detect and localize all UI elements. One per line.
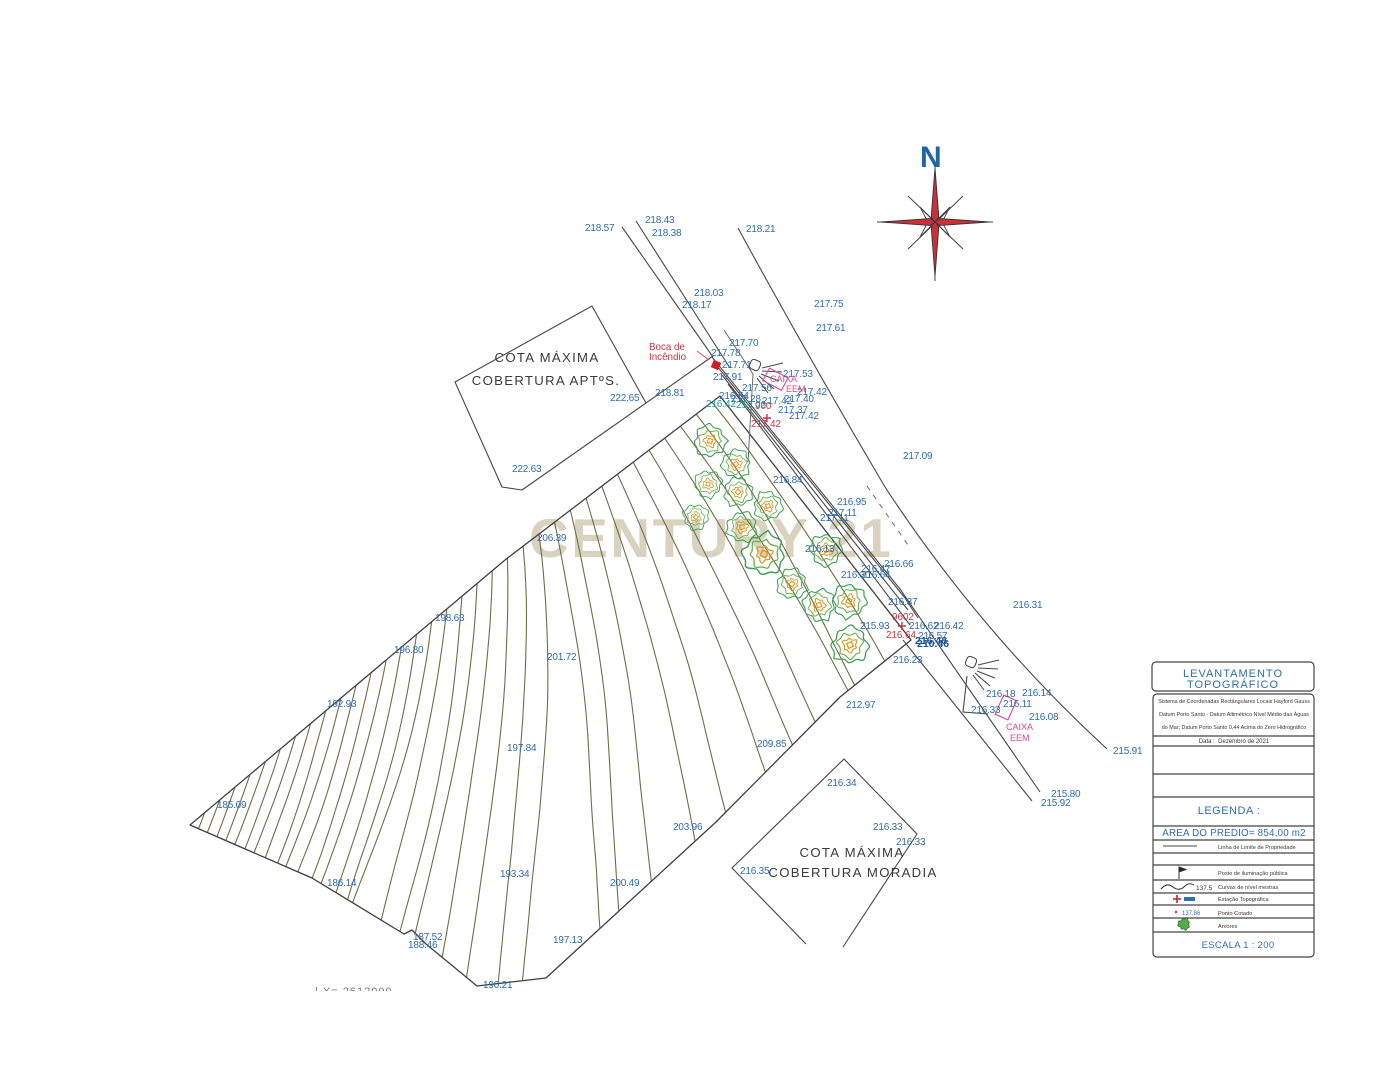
svg-text:216.23: 216.23 [893, 655, 923, 666]
svg-text:ESCALA 1 : 200: ESCALA 1 : 200 [1202, 940, 1275, 951]
svg-text:218.21: 218.21 [746, 224, 776, 235]
svg-text:215.92: 215.92 [1041, 798, 1071, 809]
svg-text:215.93: 215.93 [860, 621, 890, 632]
svg-text:216.95: 216.95 [837, 497, 867, 508]
svg-text:215.91: 215.91 [1113, 746, 1143, 757]
svg-text:216.64: 216.64 [861, 570, 891, 581]
svg-text:217.53: 217.53 [783, 369, 814, 380]
svg-text:Árvores: Árvores [1218, 923, 1237, 930]
svg-text:186.14: 186.14 [327, 878, 357, 889]
svg-text:217.09: 217.09 [903, 451, 933, 462]
svg-text:209.85: 209.85 [757, 739, 787, 750]
svg-text:218.38: 218.38 [652, 228, 682, 239]
svg-text:TOPOGRÁFICO: TOPOGRÁFICO [1187, 678, 1279, 691]
svg-text:222.63: 222.63 [512, 464, 542, 475]
svg-text:216.42: 216.42 [706, 399, 736, 410]
svg-text:216.35: 216.35 [740, 866, 770, 877]
svg-text:EEM: EEM [1010, 733, 1030, 743]
svg-text:Data : Dezembro de 2021: Data : Dezembro de 2021 [1199, 739, 1270, 745]
svg-text:216.33: 216.33 [971, 705, 1001, 716]
svg-text:218.17: 218.17 [682, 300, 712, 311]
svg-text:137,86: 137,86 [1182, 911, 1201, 917]
svg-text:217.11: 217.11 [820, 513, 849, 524]
svg-text:Ponto Cotado: Ponto Cotado [1218, 911, 1252, 917]
svg-text:218.43: 218.43 [645, 215, 675, 226]
svg-text:198.63: 198.63 [435, 613, 465, 624]
svg-text:193.34: 193.34 [500, 869, 530, 880]
svg-text:203.96: 203.96 [673, 822, 703, 833]
svg-text:212.97: 212.97 [846, 700, 876, 711]
svg-text:200.49: 200.49 [610, 878, 640, 889]
svg-text:218.57: 218.57 [585, 223, 615, 234]
svg-text:216.14: 216.14 [1022, 688, 1052, 699]
svg-text:COBERTURA APTºS.: COBERTURA APTºS. [472, 373, 621, 388]
svg-text:185.09: 185.09 [217, 800, 247, 811]
svg-text:COTA MÁXIMA: COTA MÁXIMA [800, 845, 905, 860]
svg-text:217.02: 217.02 [736, 400, 766, 411]
svg-text:217.42: 217.42 [751, 419, 781, 430]
svg-text:do Mar; Datum Porto Santo 0,44: do Mar; Datum Porto Santo 0,44 Acima do … [1162, 725, 1306, 731]
svg-text:217.75: 217.75 [814, 299, 844, 310]
svg-text:216.11: 216.11 [1003, 699, 1032, 710]
svg-text:Curvas de nível mestras: Curvas de nível mestras [1218, 885, 1279, 891]
svg-text:190.21: 190.21 [483, 980, 513, 991]
svg-text:197.13: 197.13 [553, 935, 583, 946]
svg-text:137.5: 137.5 [1196, 885, 1213, 892]
svg-text:201.72: 201.72 [547, 652, 577, 663]
svg-text:216.34: 216.34 [827, 778, 857, 789]
svg-text:Sistema de Coordenadas Rectâng: Sistema de Coordenadas Rectângulares Loc… [1158, 699, 1310, 705]
svg-text:Poste de iluminação pública: Poste de iluminação pública [1218, 871, 1289, 877]
svg-text:COTA MÁXIMA: COTA MÁXIMA [495, 350, 600, 365]
svg-text:AREA DO PREDIO= 854,00 m2: AREA DO PREDIO= 854,00 m2 [1162, 828, 1306, 839]
svg-text:218.03: 218.03 [694, 288, 724, 299]
svg-text:222.65: 222.65 [610, 393, 640, 404]
svg-text:216.37: 216.37 [888, 597, 918, 608]
svg-text:Linha de Limite de Propriedade: Linha de Limite de Propriedade [1218, 845, 1296, 851]
svg-text:216.13: 216.13 [805, 544, 835, 555]
svg-text:217.42: 217.42 [789, 411, 819, 422]
svg-text:216.84: 216.84 [773, 475, 803, 486]
svg-text:196.80: 196.80 [394, 645, 424, 656]
svg-text:COBERTURA MORADIA: COBERTURA MORADIA [768, 865, 937, 880]
svg-text:N: N [920, 141, 942, 174]
svg-text:Estação Topográfica: Estação Topográfica [1218, 897, 1269, 903]
svg-text:188.46: 188.46 [408, 940, 438, 951]
svg-text:216.31: 216.31 [1013, 600, 1043, 611]
svg-text:LEGENDA :: LEGENDA : [1198, 805, 1261, 817]
svg-text:217.71: 217.71 [722, 360, 752, 371]
svg-text:217.78: 217.78 [711, 348, 741, 359]
svg-text:CAIXA: CAIXA [1006, 722, 1033, 732]
svg-text:218.81: 218.81 [655, 388, 685, 399]
svg-text:216.08: 216.08 [1029, 712, 1059, 723]
svg-text:192.93: 192.93 [327, 699, 357, 710]
svg-text:210.46: 210.46 [917, 638, 949, 650]
svg-text:Datum Porto Santo - Datum Alti: Datum Porto Santo - Datum Altimétrico Ní… [1159, 711, 1309, 718]
svg-text:197.84: 197.84 [507, 743, 537, 754]
svg-text:217.42: 217.42 [797, 387, 827, 398]
svg-text:217.61: 217.61 [816, 323, 846, 334]
svg-text:216.33: 216.33 [873, 822, 903, 833]
svg-text:217.91: 217.91 [713, 372, 743, 383]
svg-text:206.39: 206.39 [537, 533, 567, 544]
svg-text:Incêndio: Incêndio [649, 352, 687, 363]
